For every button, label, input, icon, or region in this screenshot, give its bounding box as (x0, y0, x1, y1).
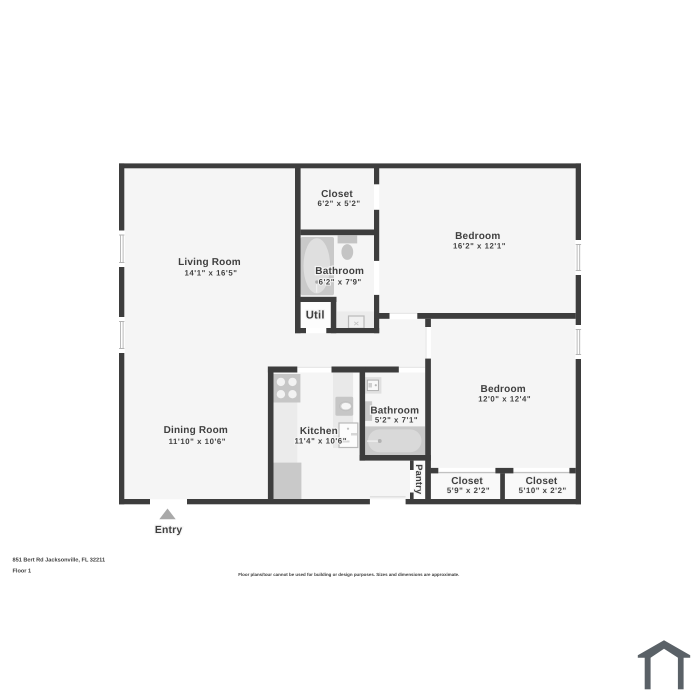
svg-text:Pantry: Pantry (414, 464, 424, 495)
svg-text:5'2" x 7'1": 5'2" x 7'1" (375, 415, 418, 424)
svg-text:Dining Room: Dining Room (164, 425, 228, 436)
svg-text:Kitchen: Kitchen (300, 426, 338, 437)
svg-text:Floor plans/tour cannot be use: Floor plans/tour cannot be used for buil… (238, 572, 459, 577)
svg-text:6'2" x 7'9": 6'2" x 7'9" (319, 278, 362, 287)
svg-text:Floor 1: Floor 1 (13, 567, 32, 574)
svg-text:Bedroom: Bedroom (455, 231, 500, 242)
svg-text:Bathroom: Bathroom (315, 266, 364, 277)
svg-text:5'10" x 2'2": 5'10" x 2'2" (519, 486, 567, 495)
svg-text:16'2" x 12'1": 16'2" x 12'1" (453, 242, 506, 251)
svg-text:Bedroom: Bedroom (481, 384, 526, 395)
svg-text:5'9" x 2'2": 5'9" x 2'2" (447, 486, 490, 495)
svg-text:11'4" x 10'6": 11'4" x 10'6" (294, 436, 347, 445)
svg-text:11'10" x 10'6": 11'10" x 10'6" (169, 437, 226, 446)
svg-text:12'0" x 12'4": 12'0" x 12'4" (478, 394, 531, 403)
svg-text:Entry: Entry (155, 525, 183, 536)
svg-text:851 Bert Rd Jacksonville, FL 3: 851 Bert Rd Jacksonville, FL 32211 (13, 557, 106, 564)
svg-text:Living Room: Living Room (178, 257, 241, 268)
svg-text:Util: Util (306, 310, 325, 322)
svg-text:6'2" x 5'2": 6'2" x 5'2" (318, 199, 361, 208)
svg-text:14'1" x 16'5": 14'1" x 16'5" (185, 269, 238, 278)
